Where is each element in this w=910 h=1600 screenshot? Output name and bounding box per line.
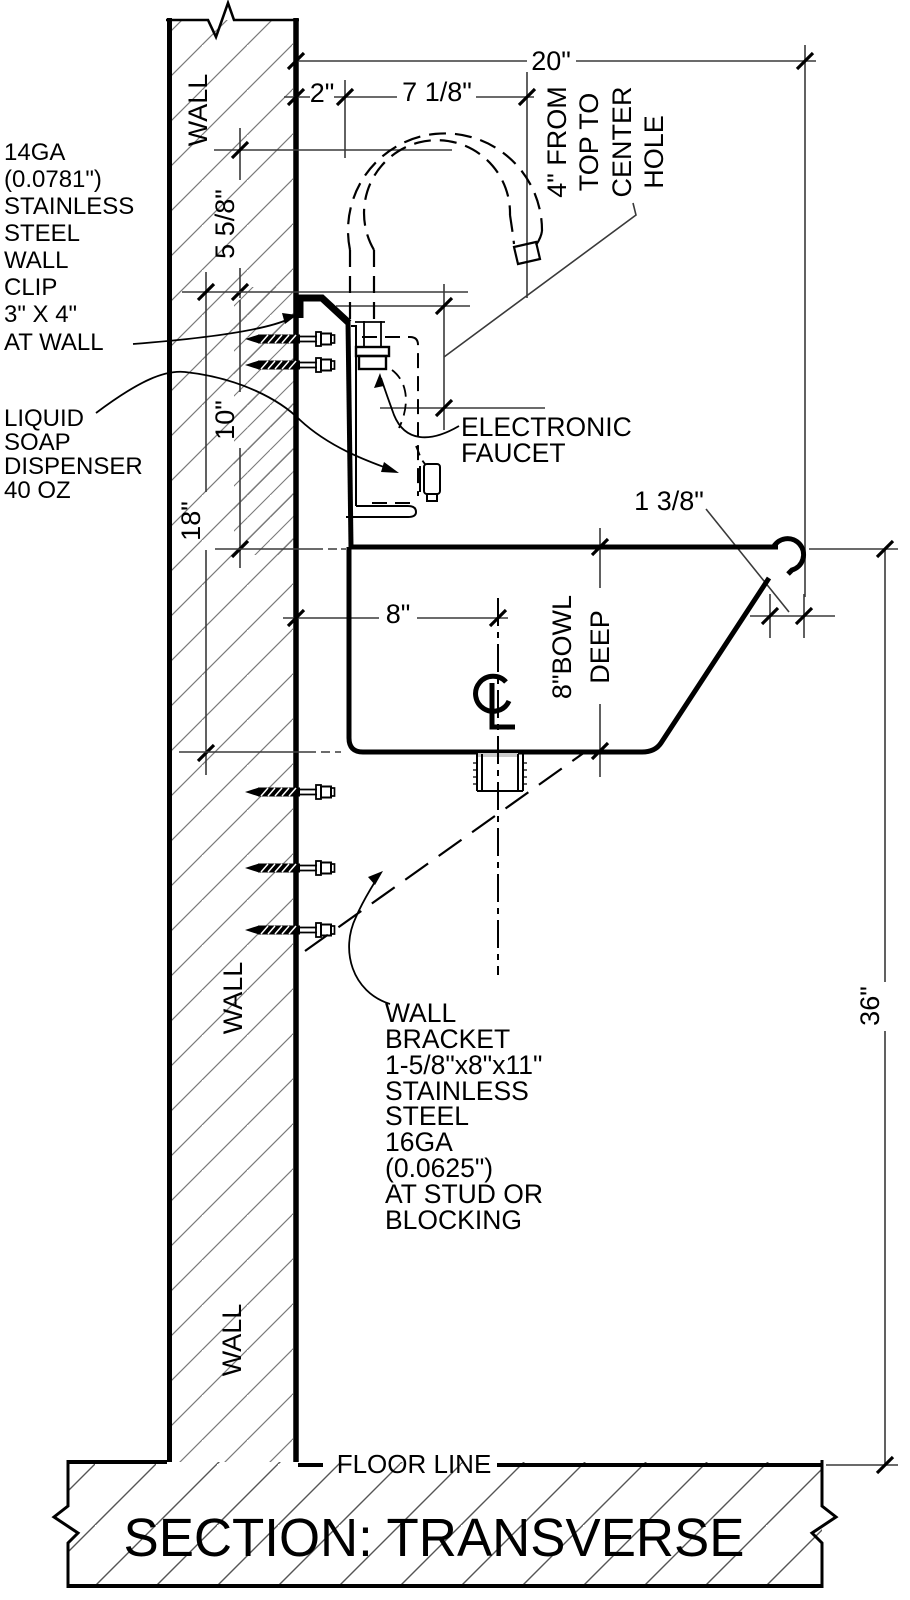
svg-text:CENTER: CENTER (607, 86, 637, 197)
svg-text:AT WALL: AT WALL (4, 329, 104, 356)
svg-text:TOP TO: TOP TO (574, 93, 604, 192)
svg-text:8"BOWL: 8"BOWL (547, 595, 577, 699)
svg-text:2": 2" (310, 78, 335, 108)
svg-text:SECTION: TRANSVERSE: SECTION: TRANSVERSE (124, 1508, 745, 1568)
svg-text:7 1/8": 7 1/8" (402, 77, 472, 107)
svg-text:WALL: WALL (4, 247, 68, 274)
svg-text:18": 18" (176, 501, 206, 541)
svg-text:WALL: WALL (217, 1304, 247, 1377)
svg-text:STEEL: STEEL (4, 220, 80, 247)
svg-text:DISPENSER: DISPENSER (4, 453, 143, 480)
svg-text:20": 20" (531, 46, 571, 76)
svg-text:WALL: WALL (183, 74, 213, 147)
svg-text:5 5/8": 5 5/8" (210, 189, 240, 259)
svg-text:3" X 4": 3" X 4" (4, 301, 77, 328)
svg-text:BLOCKING: BLOCKING (385, 1205, 522, 1235)
svg-text:(0.0781"): (0.0781") (4, 166, 102, 193)
svg-text:HOLE: HOLE (639, 115, 669, 189)
svg-text:14GA: 14GA (4, 139, 65, 166)
svg-text:FAUCET: FAUCET (461, 438, 566, 468)
svg-text:4" FROM: 4" FROM (542, 86, 572, 198)
svg-text:LIQUID: LIQUID (4, 405, 84, 432)
svg-text:1 3/8": 1 3/8" (634, 486, 704, 516)
svg-text:SOAP: SOAP (4, 429, 71, 456)
svg-text:CLIP: CLIP (4, 274, 57, 301)
svg-text:40 OZ: 40 OZ (4, 477, 71, 504)
svg-text:FLOOR LINE: FLOOR LINE (337, 1449, 492, 1479)
svg-text:8": 8" (386, 599, 411, 629)
svg-text:10": 10" (210, 400, 240, 440)
svg-text:36": 36" (855, 986, 885, 1026)
svg-text:WALL: WALL (218, 962, 248, 1035)
svg-text:DEEP: DEEP (585, 610, 615, 684)
svg-text:STAINLESS: STAINLESS (4, 193, 134, 220)
